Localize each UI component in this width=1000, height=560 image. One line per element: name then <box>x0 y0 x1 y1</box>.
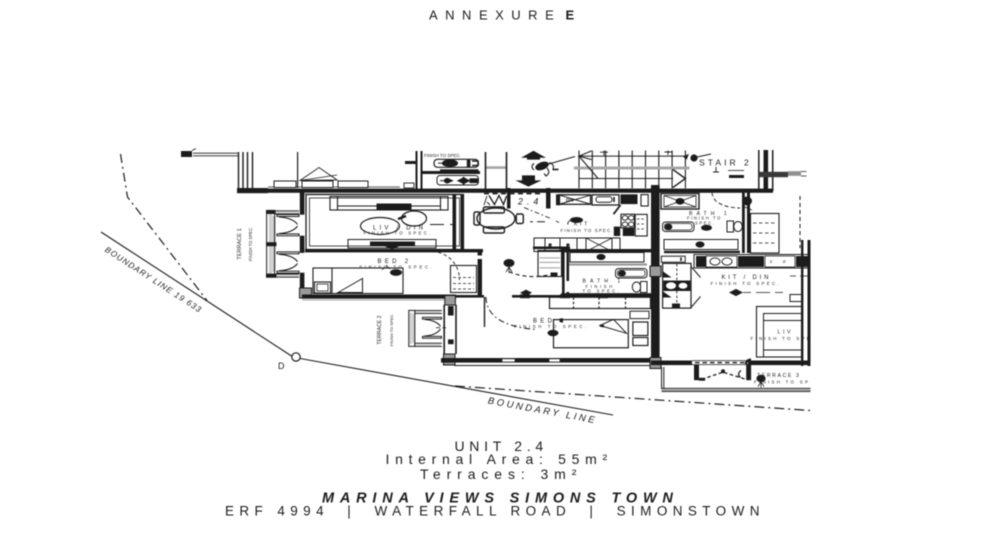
svg-text:KIT: KIT <box>574 222 590 228</box>
svg-text:FINISH TO SPEC.: FINISH TO SPEC. <box>389 314 394 347</box>
svg-text:2.4: 2.4 <box>517 197 542 207</box>
svg-text:D: D <box>278 361 285 371</box>
svg-text:Terraces: 3m²: Terraces: 3m² <box>420 466 582 482</box>
svg-text:FINISH TO SPEC.: FINISH TO SPEC. <box>360 265 435 270</box>
svg-text:TERRACE 1: TERRACE 1 <box>237 228 243 259</box>
svg-text:FINISH TO SPEC.: FINISH TO SPEC. <box>514 324 589 329</box>
svg-text:FINISH TO SPEC.: FINISH TO SPEC. <box>711 281 781 286</box>
svg-text:F: F <box>770 260 773 265</box>
svg-text:E: E <box>566 8 575 23</box>
svg-text:Internal Area: 55m²: Internal Area: 55m² <box>386 451 613 467</box>
svg-text:FINISH TO SPEC.: FINISH TO SPEC. <box>424 153 461 158</box>
svg-text:ERF 4994 | WATERFALL ROAD |: ERF 4994 | WATERFALL ROAD | SIMONSTOWN <box>225 504 765 519</box>
svg-text:LIV: LIV <box>778 330 794 336</box>
svg-text:STAIR 2: STAIR 2 <box>699 158 752 168</box>
svg-text:SPEC.: SPEC. <box>695 221 716 226</box>
svg-text:F: F <box>549 243 552 248</box>
svg-text:TO SPEC.: TO SPEC. <box>583 289 622 294</box>
svg-text:ANNEXURE: ANNEXURE <box>429 8 561 23</box>
svg-text:FINISH TO SPEC.: FINISH TO SPEC. <box>364 231 433 236</box>
svg-text:BOUNDARY LINE 19 633: BOUNDARY LINE 19 633 <box>103 245 203 315</box>
svg-text:BY OWNER: BY OWNER <box>387 207 401 211</box>
svg-text:P: P <box>783 260 786 265</box>
svg-text:DW: DW <box>566 198 574 203</box>
svg-text:OV: OV <box>744 261 750 266</box>
svg-text:BOUNDARY LINE: BOUNDARY LINE <box>487 396 598 427</box>
svg-text:TERRACE 2: TERRACE 2 <box>377 315 383 344</box>
svg-text:FINISH TO SPEC.: FINISH TO SPEC. <box>561 228 614 233</box>
svg-text:P: P <box>567 243 570 248</box>
svg-text:FINISH TO SPEC.: FINISH TO SPEC. <box>248 227 253 261</box>
